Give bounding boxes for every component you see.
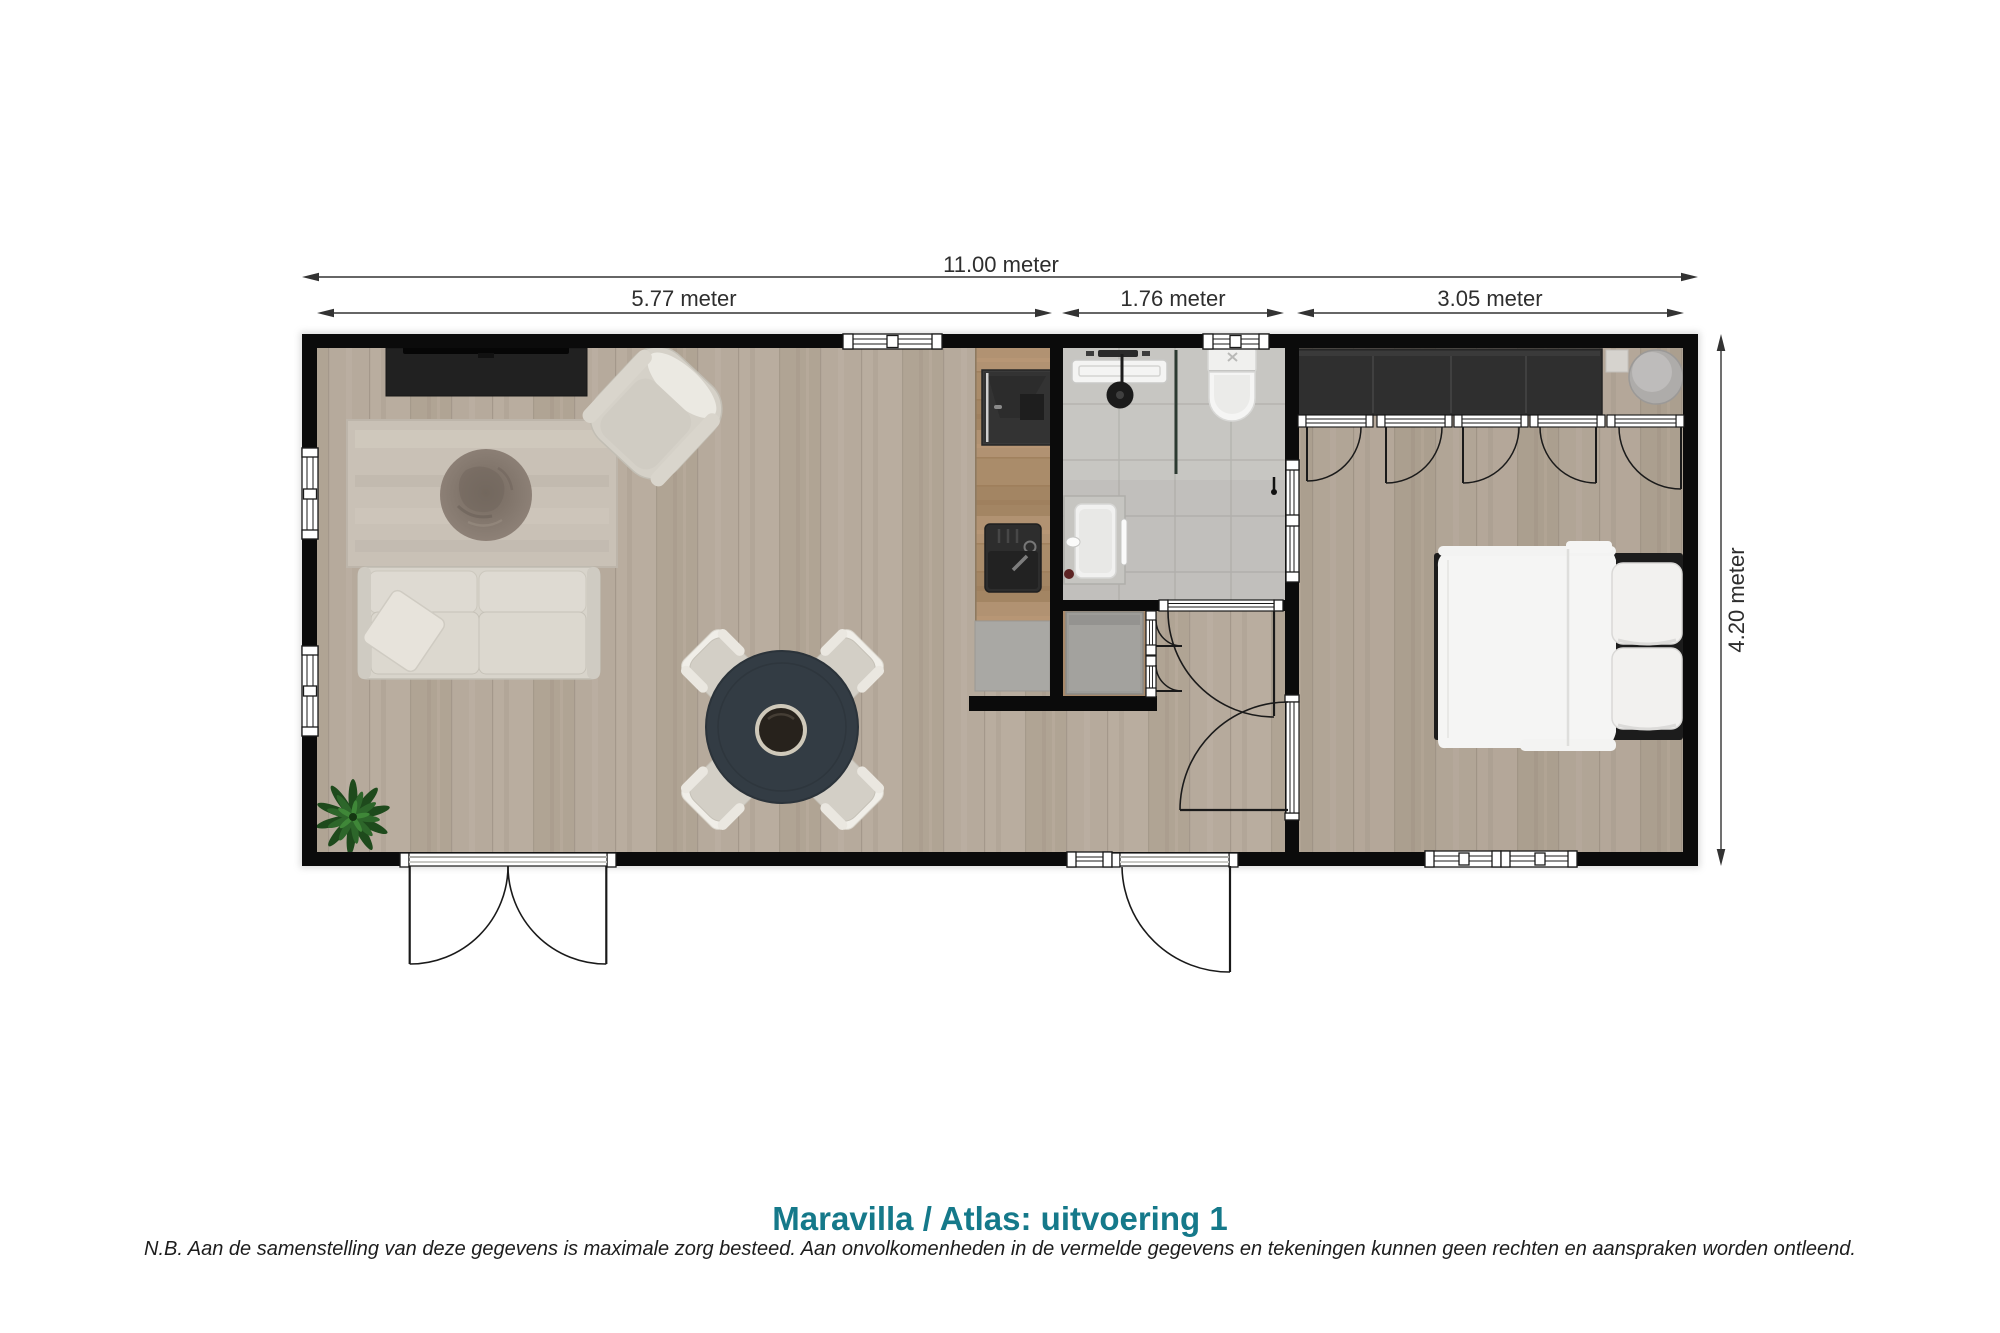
svg-text:5.77 meter: 5.77 meter — [631, 286, 736, 311]
svg-text:4.20 meter: 4.20 meter — [1724, 547, 1749, 652]
svg-text:Maravilla / Atlas: uitvoering: Maravilla / Atlas: uitvoering 1 — [772, 1200, 1227, 1237]
svg-text:N.B. Aan de samenstelling van: N.B. Aan de samenstelling van deze gegev… — [144, 1238, 1856, 1260]
svg-text:3.05 meter: 3.05 meter — [1437, 286, 1542, 311]
svg-text:11.00 meter: 11.00 meter — [943, 252, 1059, 277]
svg-text:1.76 meter: 1.76 meter — [1120, 286, 1225, 311]
